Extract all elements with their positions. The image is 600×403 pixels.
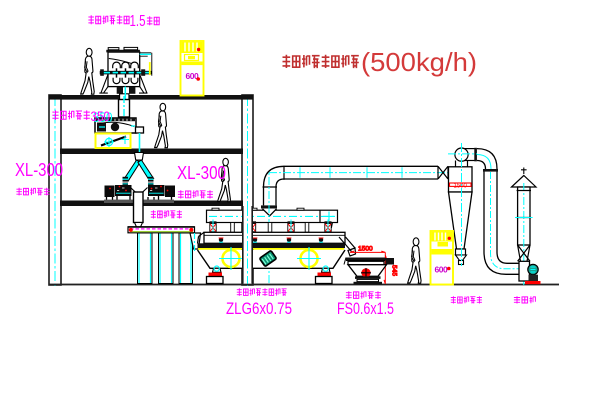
svg-text:1.5: 1.5 (130, 13, 146, 30)
svg-text:545: 545 (391, 265, 398, 276)
svg-text:1500: 1500 (454, 183, 468, 189)
svg-text:XL-300: XL-300 (15, 160, 63, 180)
svg-text:1500: 1500 (358, 246, 373, 253)
svg-text:XL-300: XL-300 (177, 163, 226, 183)
svg-text:FS0.6x1.5: FS0.6x1.5 (337, 299, 394, 318)
svg-text:350: 350 (91, 109, 111, 124)
svg-text:ZLG6x0.75: ZLG6x0.75 (226, 299, 292, 318)
svg-text:600: 600 (435, 265, 448, 275)
svg-text:(500kg/h): (500kg/h) (361, 47, 477, 77)
